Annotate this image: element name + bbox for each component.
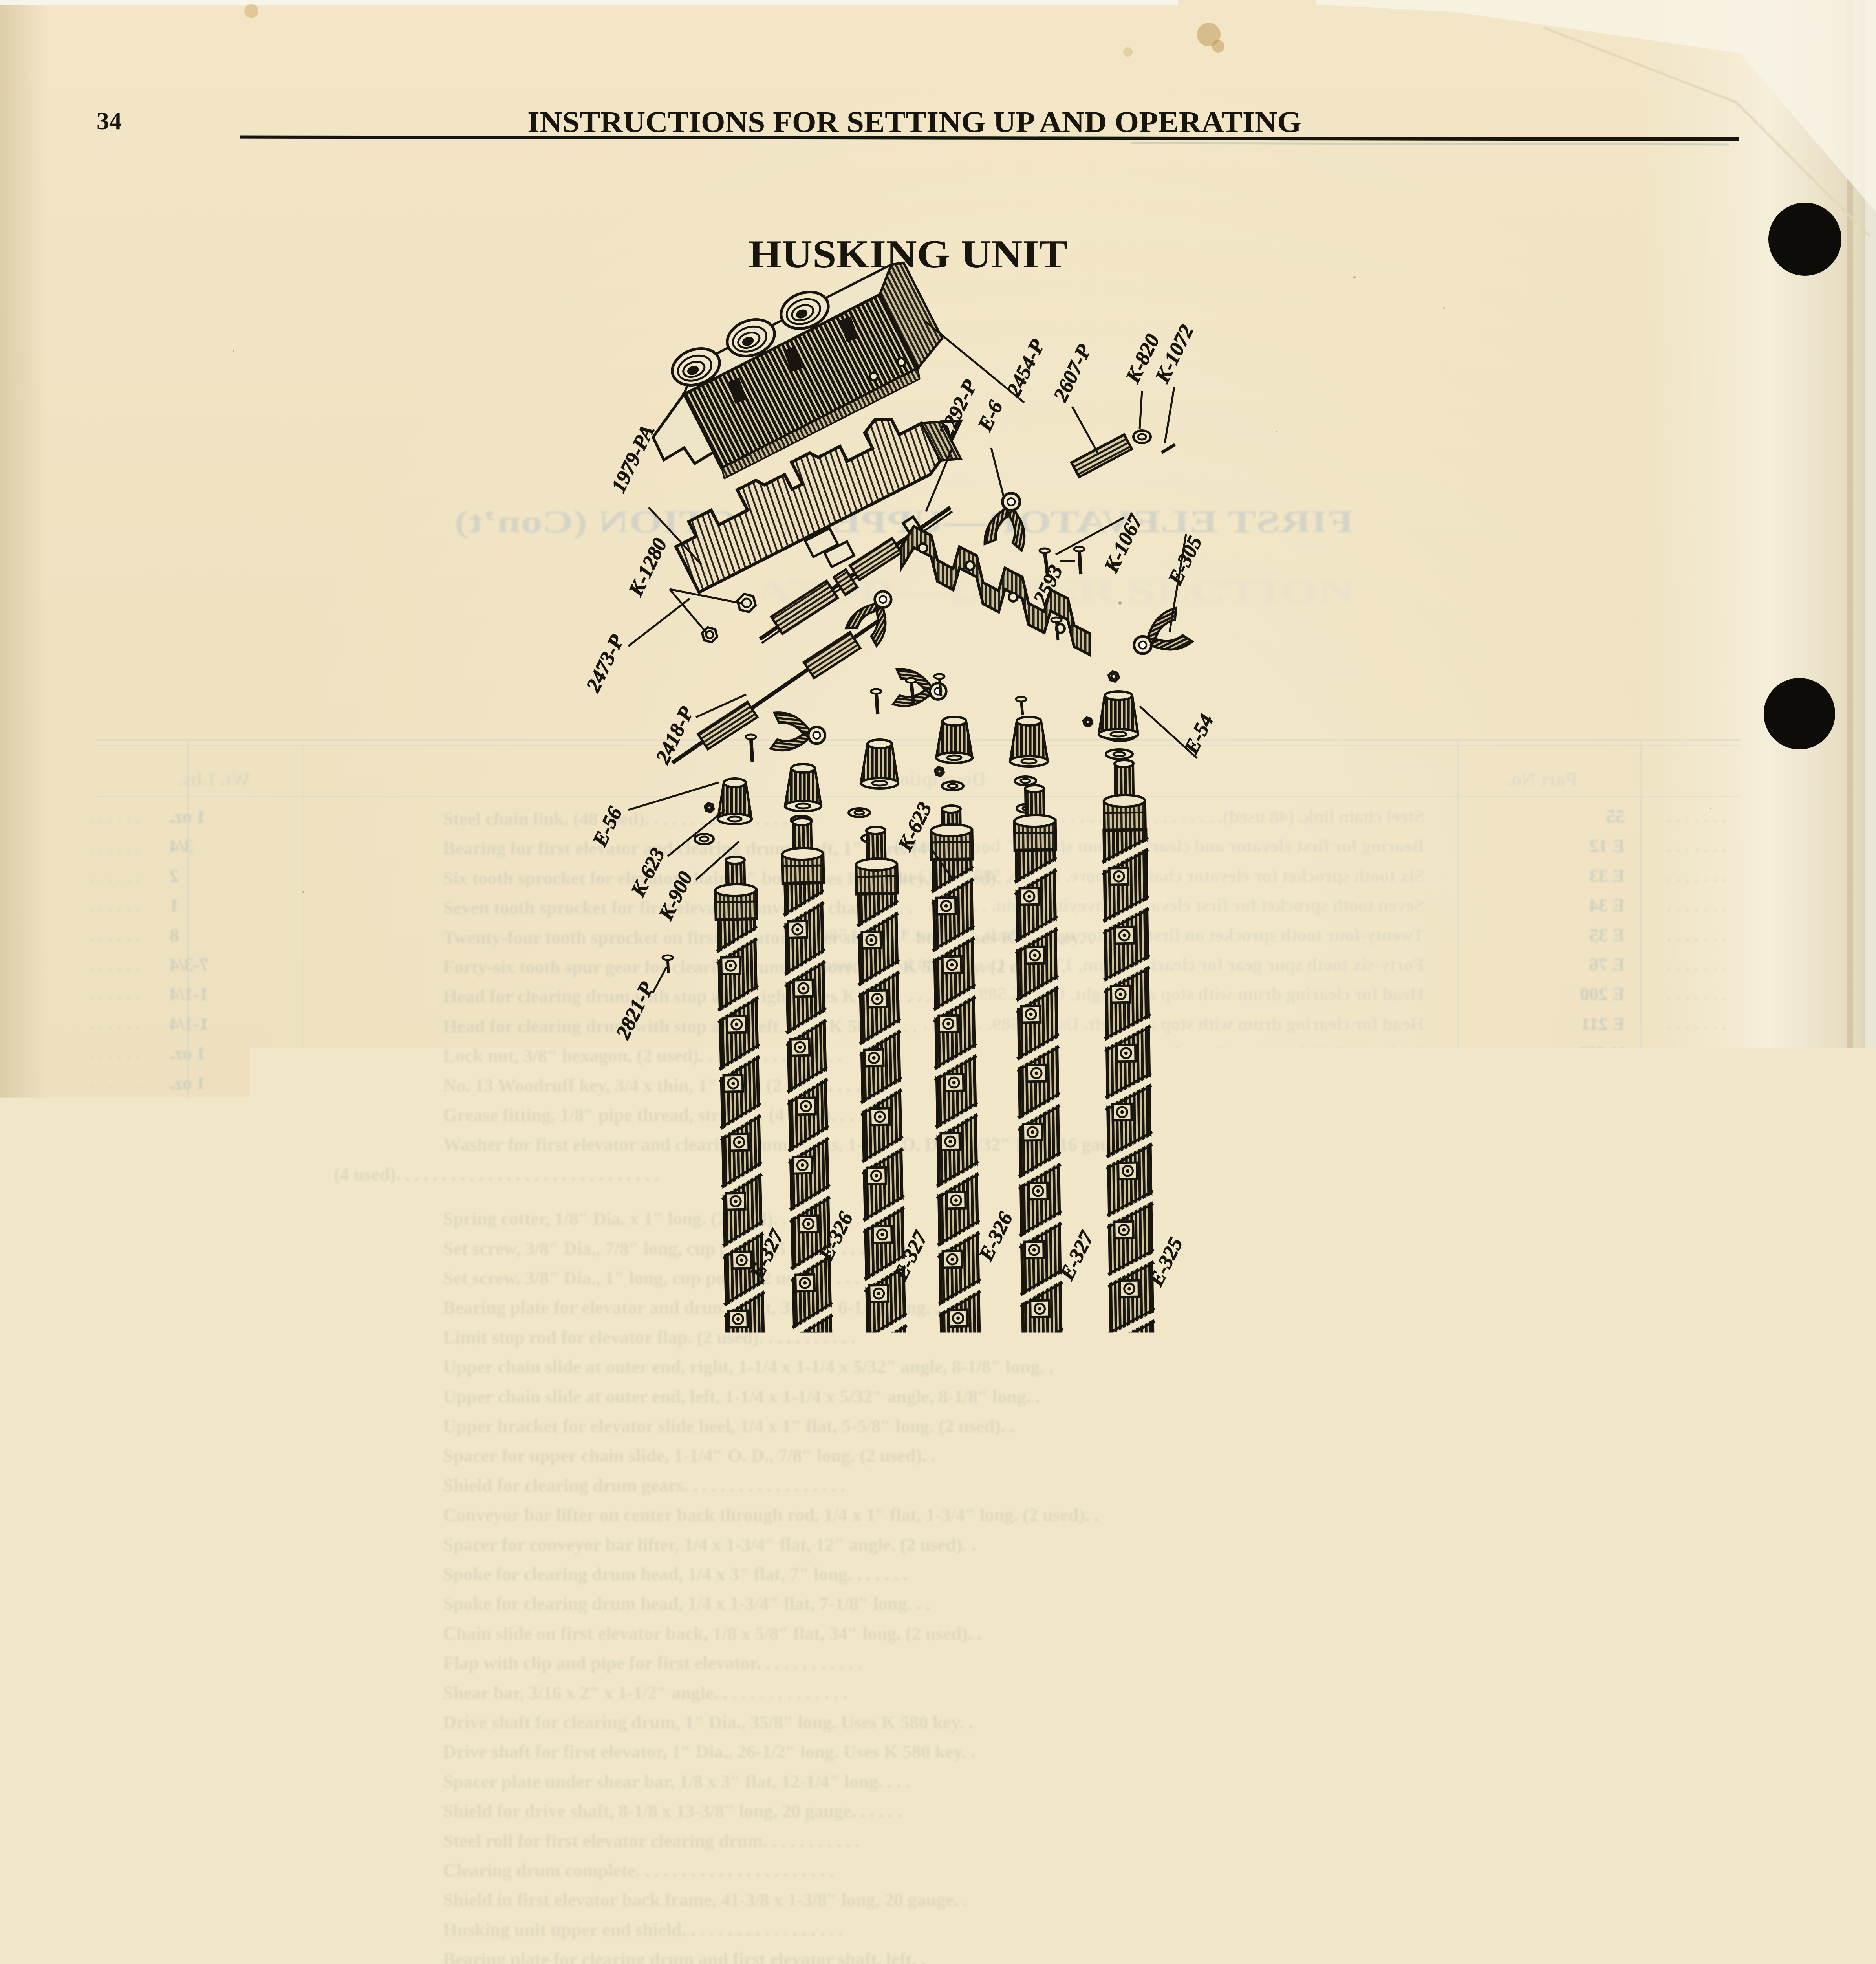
svg-text:K 575: K 575 — [1578, 1043, 1625, 1064]
svg-text:2092 P: 2092 P — [1572, 1739, 1625, 1760]
svg-text:K 1162: K 1162 — [1570, 1266, 1625, 1286]
svg-text:INSTRUCTIONS FOR SETTING UP AN: INSTRUCTIONS FOR SETTING UP AND OPERATIN… — [527, 106, 1301, 139]
svg-text:Shield for clearing drum gears: Shield for clearing drum gears. . . . . … — [443, 1475, 845, 1496]
svg-text:. . . . . . .: . . . . . . . — [1667, 1562, 1727, 1582]
svg-text:1-1/4: 1-1/4 — [170, 1014, 209, 1034]
svg-text:809 P: 809 P — [1581, 1295, 1625, 1315]
svg-text:. . . . . . .: . . . . . . . — [1667, 1710, 1727, 1730]
svg-text:Shear bar, 3/16 x 2″ x 1-1/2″: Shear bar, 3/16 x 2″ x 1-1/2″ angle. . .… — [443, 1683, 847, 1703]
svg-text:Lock nut, 3/8″ hexagon. (2 us: Lock nut, 3/8″ hexagon. (2 used). . . . … — [443, 1046, 842, 1066]
svg-text:. . . . . .: . . . . . . — [90, 1887, 140, 1908]
svg-text:. . . . . .: . . . . . . — [90, 1206, 140, 1227]
svg-text:. . . . . .: . . . . . . — [90, 1621, 140, 1642]
svg-text:Lock nut, 3/8″ hexagon. (2 us: Lock nut, 3/8″ hexagon. (2 used). . . . … — [998, 1043, 1424, 1064]
svg-text:1-1/2: 1-1/2 — [170, 1295, 209, 1315]
svg-text:2: 2 — [170, 866, 179, 886]
svg-text:. . . . . .: . . . . . . — [90, 1103, 140, 1123]
svg-text:980 P: 980 P — [1581, 1591, 1625, 1612]
svg-text:Drive shaft for clearing drum,: Drive shaft for clearing drum, 1″ Dia., … — [443, 1712, 973, 1733]
svg-text:. . . . . . .: . . . . . . . — [1667, 1591, 1727, 1612]
svg-text:K 1071: K 1071 — [1569, 1206, 1625, 1227]
svg-text:. . . . . .: . . . . . . — [90, 1562, 140, 1582]
svg-text:. . . . . . .: . . . . . . . — [1667, 1799, 1727, 1819]
svg-text:Head for clearing drum with st: Head for clearing drum with stop arm, le… — [443, 1016, 917, 1037]
svg-text:. . . . . . .: . . . . . . . — [1667, 866, 1727, 886]
svg-text:. . . . . . .: . . . . . . . — [1667, 1947, 1727, 1964]
svg-text:. . . . . .: . . . . . . — [90, 1917, 140, 1938]
svg-text:1-1/4: 1-1/4 — [170, 1769, 209, 1790]
svg-text:1-1/4: 1-1/4 — [170, 1680, 209, 1701]
svg-text:1/2: 1/2 — [170, 1502, 193, 1523]
svg-text:Shield for drive shaft, 8-1/8: Shield for drive shaft, 8-1/8 x 13-3/8″ … — [443, 1801, 902, 1821]
svg-text:. . . . . .: . . . . . . — [90, 1073, 140, 1094]
svg-text:1-3/4: 1-3/4 — [170, 1354, 209, 1375]
svg-text:. . . . . .: . . . . . . — [90, 1162, 140, 1182]
svg-text:Head for clearing drum with st: Head for clearing drum with stop arm, ri… — [443, 986, 930, 1007]
svg-text:. . . . . .: . . . . . . — [90, 1132, 140, 1152]
svg-text:811 P: 811 P — [1582, 1325, 1625, 1345]
svg-text:. . . . . .: . . . . . . — [90, 1443, 140, 1464]
svg-text:. . . . . . .: . . . . . . . — [1667, 1769, 1727, 1790]
svg-text:2156 P: 2156 P — [1572, 1828, 1625, 1849]
svg-text:. . . . . . .: . . . . . . . — [1667, 1858, 1727, 1878]
svg-text:Spacer for upper chain slide,: Spacer for upper chain slide, 1-1/4″ O. … — [443, 1446, 935, 1466]
svg-text:. . . . . . .: . . . . . . . — [1667, 1443, 1727, 1464]
svg-text:. . . . . . .: . . . . . . . — [1667, 1206, 1727, 1227]
svg-text:2061 PA: 2061 PA — [1560, 1651, 1625, 1671]
svg-text:Wt. Lbs.: Wt. Lbs. — [179, 768, 251, 790]
svg-text:5: 5 — [170, 1739, 179, 1760]
svg-text:2159 P: 2159 P — [1572, 1917, 1625, 1938]
svg-text:1-3/4: 1-3/4 — [170, 1384, 209, 1405]
svg-text:817 P: 817 P — [1581, 1384, 1625, 1405]
svg-text:E 211: E 211 — [1581, 1014, 1625, 1034]
svg-text:Spacer for upper chain slide,: Spacer for upper chain slide, 1-1/4″ O. … — [913, 1443, 1424, 1464]
svg-text:E 12: E 12 — [1589, 836, 1625, 856]
svg-text:. . . . . .: . . . . . . — [90, 1325, 140, 1345]
svg-text:Steel roll for first elevator: Steel roll for first elevator clearing d… — [980, 1828, 1424, 1849]
svg-text:4-1/4: 4-1/4 — [170, 1887, 209, 1908]
svg-text:. . . . . .: . . . . . . — [90, 1236, 140, 1257]
svg-text:978 PA: 978 PA — [1569, 1473, 1625, 1493]
svg-text:Spacer plate under shear bar,: Spacer plate under shear bar, 1/8 x 3″ f… — [930, 1769, 1425, 1790]
svg-text:. . . . . . .: . . . . . . . — [1667, 1532, 1727, 1553]
svg-text:4: 4 — [170, 1828, 179, 1849]
svg-text:. . . . . . .: . . . . . . . — [1667, 1887, 1727, 1908]
svg-text:. . . . . . .: . . . . . . . — [1667, 1162, 1727, 1182]
svg-text:. . . . . . .: . . . . . . . — [1667, 1739, 1727, 1760]
svg-text:Drive shaft for clearing drum,: Drive shaft for clearing drum, 1″ Dia., … — [894, 1710, 1424, 1730]
svg-text:. . . . . .: . . . . . . — [90, 1502, 140, 1523]
svg-text:Chain slide on first elevator: Chain slide on first elevator back, 1/8 … — [443, 1623, 981, 1644]
svg-text:. . . . . . .: . . . . . . . — [1667, 836, 1727, 856]
svg-text:E 76: E 76 — [1589, 955, 1625, 975]
svg-text:. . . . . . .: . . . . . . . — [1667, 1043, 1727, 1064]
svg-text:. . . . . . .: . . . . . . . — [1667, 1325, 1727, 1345]
svg-text:(4 used). . . . . . . . . . .: (4 used). . . . . . . . . . . . . . . . … — [334, 1164, 659, 1185]
svg-text:. . . . . . .: . . . . . . . — [1667, 1917, 1727, 1938]
svg-text:. . . . . .: . . . . . . — [90, 1266, 140, 1286]
svg-text:956 P: 956 P — [1581, 1414, 1625, 1434]
svg-text:A2181 P: A2181 P — [1559, 1947, 1625, 1964]
svg-text:Shield for drive shaft, 8-1/8: Shield for drive shaft, 8-1/8 x 13-3/8″ … — [938, 1799, 1424, 1819]
svg-text:. . . . . .: . . . . . . — [90, 866, 140, 886]
svg-text:. . . . . . .: . . . . . . . — [1667, 1473, 1727, 1493]
svg-text:. . . . . .: . . . . . . — [90, 955, 140, 975]
svg-text:. . . . . .: . . . . . . — [90, 895, 140, 916]
svg-text:Bearing plate for clearing dru: Bearing plate for clearing drum and firs… — [914, 1947, 1424, 1964]
svg-text:976 P: 976 P — [1581, 1502, 1625, 1523]
svg-text:. . . . . . .: . . . . . . . — [1667, 1266, 1727, 1286]
svg-text:1/4: 1/4 — [170, 1621, 193, 1642]
svg-text:1/2: 1/2 — [170, 1414, 193, 1434]
svg-text:. . . . . . .: . . . . . . . — [1667, 1621, 1727, 1642]
svg-text:Part No.: Part No. — [1507, 768, 1578, 790]
svg-text:. . . . . .: . . . . . . — [90, 1710, 140, 1730]
svg-text:. . . . . . .: . . . . . . . — [1667, 1295, 1727, 1315]
svg-text:2091 P: 2091 P — [1572, 1710, 1625, 1730]
svg-text:Bearing plate for elevator and: Bearing plate for elevator and drum shaf… — [443, 1297, 939, 1318]
svg-text:K 621: K 621 — [1578, 1103, 1625, 1123]
svg-text:. . . . . .: . . . . . . — [90, 1947, 140, 1964]
svg-text:. . . . . .: . . . . . . — [90, 984, 140, 1004]
svg-text:. . . . . .: . . . . . . — [90, 1799, 140, 1819]
svg-text:. . . . . . .: . . . . . . . — [1667, 1384, 1727, 1405]
svg-text:. . . . . .: . . . . . . — [90, 1295, 140, 1315]
svg-text:. . . . . . .: . . . . . . . — [1667, 806, 1727, 827]
svg-text:2132 P: 2132 P — [1572, 1799, 1625, 1819]
svg-text:. . . . . .: . . . . . . — [90, 1858, 140, 1878]
svg-text:. . . . . . .: . . . . . . . — [1667, 1103, 1727, 1123]
svg-text:Head for clearing drum with st: Head for clearing drum with stop arm, le… — [923, 1014, 1424, 1034]
svg-text:. . . . . . .: . . . . . . . — [1667, 1828, 1727, 1849]
svg-text:977 P: 977 P — [1581, 1532, 1625, 1553]
svg-text:. . . . . .: . . . . . . — [90, 925, 140, 945]
svg-text:FIRST ELEVATOR—UPPER SECTION: FIRST ELEVATOR—UPPER SECTION — [463, 574, 1355, 609]
svg-text:Steel roll for first elevator: Steel roll for first elevator clearing d… — [443, 1831, 860, 1851]
svg-text:. . . . . . .: . . . . . . . — [1667, 1236, 1727, 1257]
svg-text:. . . . . .: . . . . . . — [90, 1769, 140, 1790]
svg-text:1-1/4: 1-1/4 — [170, 984, 209, 1004]
svg-text:. . . . . .: . . . . . . — [90, 1473, 140, 1493]
svg-text:2-3/4: 2-3/4 — [170, 1917, 209, 1938]
svg-text:. . . . . .: . . . . . . — [90, 1739, 140, 1760]
svg-text:(4 used). . . . . . . . . . .: (4 used). . . . . . . . . . . . . . . . … — [1186, 1162, 1538, 1182]
svg-text:2158 P: 2158 P — [1572, 1887, 1625, 1908]
svg-text:5: 5 — [170, 1947, 179, 1964]
svg-text:816 P: 816 P — [1581, 1354, 1625, 1375]
svg-text:. . . . . .: . . . . . . — [90, 806, 140, 827]
svg-text:. . . . . .: . . . . . . — [90, 1651, 140, 1671]
svg-text:K 580: K 580 — [1578, 1073, 1625, 1094]
svg-text:Steel chain link. (48 used).: Steel chain link. (48 used). . . . . . .… — [1025, 806, 1424, 827]
svg-text:. . . . . . .: . . . . . . . — [1667, 1132, 1727, 1152]
svg-text:5: 5 — [170, 1710, 179, 1730]
svg-text:Head for clearing drum with st: Head for clearing drum with stop arm, ri… — [910, 984, 1424, 1004]
svg-text:K 1160: K 1160 — [1570, 1236, 1625, 1257]
svg-text:. . . . . .: . . . . . . — [90, 1043, 140, 1064]
svg-text:. . . . . . .: . . . . . . . — [1667, 955, 1727, 975]
svg-text:Clearing drum complete. . . .: Clearing drum complete. . . . . . . . . … — [443, 1860, 834, 1881]
svg-text:1/4: 1/4 — [170, 1325, 193, 1345]
svg-text:2064 P: 2064 P — [1572, 1680, 1625, 1701]
svg-text:. . . . . . .: . . . . . . . — [1667, 1680, 1727, 1701]
svg-text:. . . . . .: . . . . . . — [90, 1591, 140, 1612]
svg-text:. . . . . .: . . . . . . — [90, 1384, 140, 1405]
svg-text:. . . . . . .: . . . . . . . — [1667, 1014, 1727, 1034]
svg-text:. . . . . . .: . . . . . . . — [1667, 1651, 1727, 1671]
svg-text:2125 P: 2125 P — [1572, 1769, 1625, 1790]
svg-text:. . . . . . .: . . . . . . . — [1667, 895, 1727, 916]
svg-text:. . . . . .: . . . . . . — [90, 1014, 140, 1034]
svg-text:E 35: E 35 — [1589, 925, 1625, 945]
svg-text:55: 55 — [1606, 806, 1625, 827]
svg-text:2053 P: 2053 P — [1572, 1621, 1625, 1642]
svg-text:Seven tooth sprocket for first: Seven tooth sprocket for first elevator … — [927, 895, 1424, 916]
svg-text:1: 1 — [170, 895, 179, 916]
svg-text:Steel chain link. (48 used).: Steel chain link. (48 used). . . . . . .… — [443, 809, 815, 829]
svg-text:. . . . . .: . . . . . . — [90, 1680, 140, 1701]
svg-text:. . . . . .: . . . . . . — [90, 836, 140, 856]
svg-text:. . . . . .: . . . . . . — [90, 1354, 140, 1375]
svg-text:979 P: 979 P — [1581, 1562, 1625, 1582]
svg-text:. . . . . . .: . . . . . . . — [1667, 1502, 1727, 1523]
svg-text:E 34: E 34 — [1589, 895, 1625, 916]
svg-text:E 200: E 200 — [1580, 984, 1625, 1004]
svg-text:. . . . . .: . . . . . . — [90, 1532, 140, 1553]
svg-text:8: 8 — [170, 925, 179, 945]
svg-text:Bearing plate for clearing dru: Bearing plate for clearing drum and firs… — [443, 1949, 926, 1964]
svg-text:E 33: E 33 — [1589, 866, 1625, 886]
svg-text:957 P: 957 P — [1581, 1443, 1625, 1464]
svg-text:. . . . . . .: . . . . . . . — [1667, 984, 1727, 1004]
svg-text:Twenty-four tooth sprocket on: Twenty-four tooth sprocket on first elev… — [443, 927, 1093, 948]
svg-text:. . . . . . .: . . . . . . . — [1667, 1073, 1727, 1094]
svg-text:Spacer plate under shear bar,: Spacer plate under shear bar, 1/8 x 3″ f… — [443, 1772, 910, 1792]
svg-text:2156 PA: 2156 PA — [1560, 1858, 1625, 1878]
svg-text:Shield in first elevator back: Shield in first elevator back frame, 41-… — [900, 1887, 1424, 1908]
svg-text:. . . . . . .: . . . . . . . — [1667, 925, 1727, 945]
svg-text:1-1/2: 1-1/2 — [170, 1799, 209, 1819]
svg-text:7-3/4: 7-3/4 — [170, 955, 209, 975]
svg-text:34: 34 — [97, 107, 122, 135]
svg-text:K 572: K 572 — [1578, 1132, 1625, 1152]
svg-text:. . . . . . .: . . . . . . . — [1667, 1414, 1727, 1434]
svg-text:1-3/4: 1-3/4 — [170, 1651, 209, 1671]
svg-text:. . . . . .: . . . . . . — [90, 1414, 140, 1434]
svg-text:. . . . . .: . . . . . . — [90, 1828, 140, 1849]
svg-text:17: 17 — [170, 1858, 188, 1878]
svg-text:1-1/2: 1-1/2 — [170, 1473, 209, 1493]
svg-text:. . . . . . .: . . . . . . . — [1667, 1354, 1727, 1375]
svg-text:3/4: 3/4 — [170, 836, 193, 856]
